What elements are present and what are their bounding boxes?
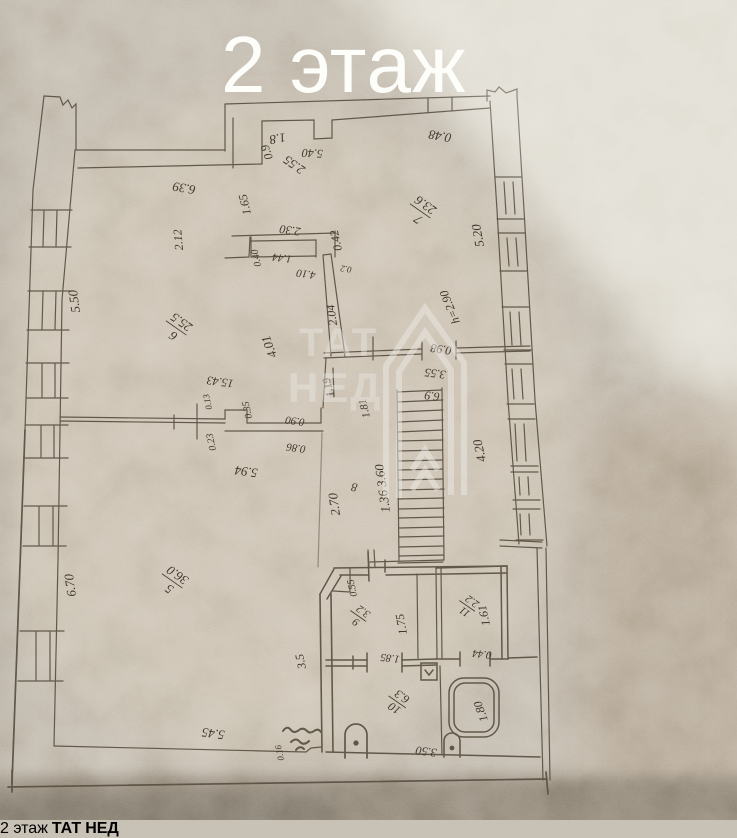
svg-text:5.40: 5.40 [301,146,323,161]
svg-text:НЕД: НЕД [288,364,382,411]
svg-text:3.50: 3.50 [415,743,439,760]
svg-text:0.44: 0.44 [471,647,492,661]
svg-text:5.50: 5.50 [65,289,83,314]
svg-text:0.2: 0.2 [339,263,352,275]
svg-text:5.94: 5.94 [233,463,258,481]
svg-text:2.12: 2.12 [170,229,186,251]
svg-text:6.9: 6.9 [424,388,440,403]
svg-text:ТАТ: ТАТ [299,321,378,365]
svg-text:2.30: 2.30 [279,222,302,239]
svg-text:2 этаж: 2 этаж [221,20,467,109]
svg-text:6.70: 6.70 [61,573,79,598]
svg-text:2.70: 2.70 [325,492,343,517]
svg-text:3.55: 3.55 [424,365,448,382]
svg-text:5.45: 5.45 [200,725,225,743]
svg-text:1.85: 1.85 [379,651,400,665]
